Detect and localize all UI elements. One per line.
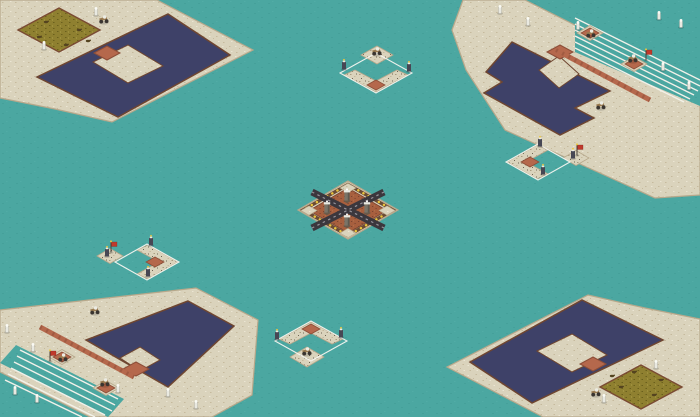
game-map-canvas[interactable] [0,0,700,417]
game-viewport[interactable] [0,0,700,417]
